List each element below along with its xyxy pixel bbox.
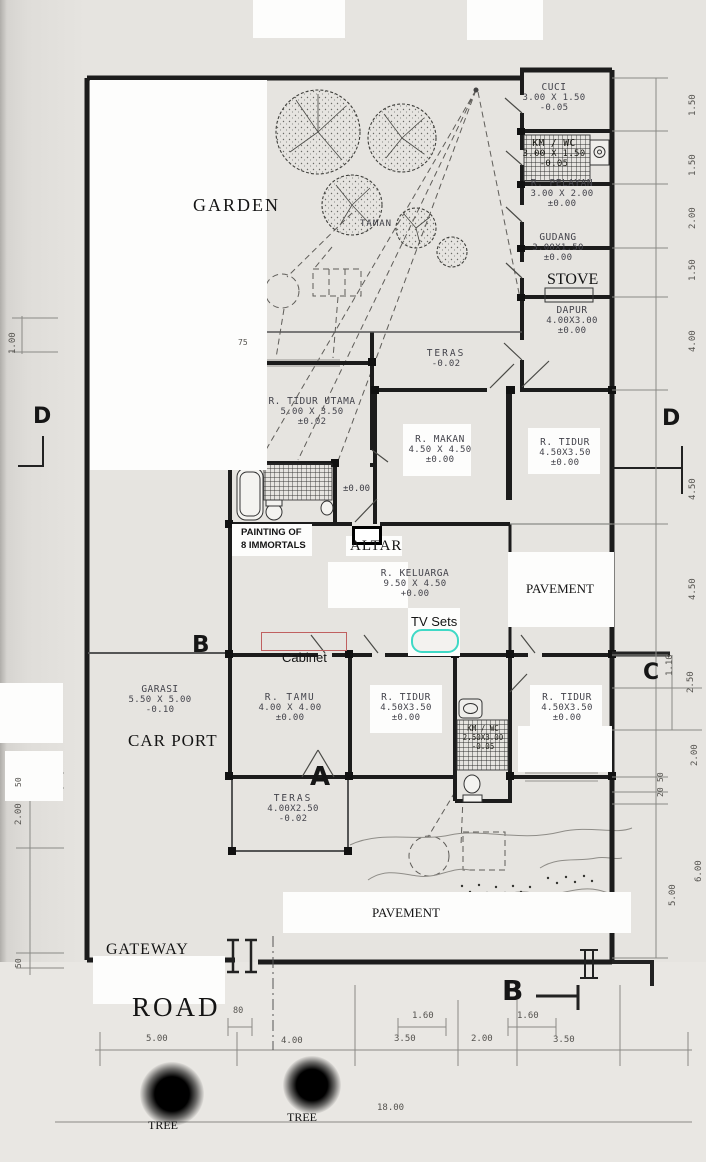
whiteout-patch (518, 726, 612, 772)
room-dapur: DAPUR 4.00X3.00 ±0.00 (546, 305, 597, 336)
floor-plan-scan: CUCI 3.00 X 1.50 -0.05 KM / WC 3.00 X 1.… (0, 0, 706, 1162)
room-level: -0.05 (523, 159, 586, 169)
room-name: R. TIDUR (380, 692, 431, 703)
painting-label-line2: 8 IMMORTALS (241, 540, 306, 551)
room-name: R. KELUARGA (381, 568, 449, 579)
room-size: 5.00 X 3.50 (268, 407, 355, 417)
room-name: R. PELAYAN (531, 178, 594, 189)
room-level: -0.05 (523, 103, 586, 113)
room-kmwc-top: KM / WC 3.00 X 1.50 -0.05 (523, 138, 586, 169)
whiteout-patch (283, 892, 631, 933)
taman-label: TAMAN (360, 219, 392, 229)
room-name: TERAS (427, 348, 466, 359)
garden-trees (276, 90, 467, 267)
dim-label: 1.00 (8, 332, 18, 354)
dim-label: 80 (233, 1006, 243, 1016)
dim-label: 1.60 (517, 1011, 539, 1021)
dim-label: 1.50 (688, 259, 698, 281)
room-name: R. TIDUR UTAMA (268, 396, 355, 407)
dim-label: 2.50 (686, 671, 696, 693)
tree-symbol (140, 1062, 204, 1126)
room-cuci: CUCI 3.00 X 1.50 -0.05 (523, 82, 586, 113)
room-name: R. TAMU (259, 692, 322, 703)
room-level: ±0.00 (259, 713, 322, 723)
room-teras-mid: TERAS -0.02 (427, 348, 466, 369)
room-level: ±0.00 (546, 326, 597, 336)
room-tidur-utama: R. TIDUR UTAMA 5.00 X 3.50 ±0.02 (268, 396, 355, 427)
dim-label: 5.00 (146, 1034, 168, 1044)
room-name: CUCI (523, 82, 586, 93)
room-level: ±0.00 (541, 713, 592, 723)
dim-label: 1.10 (665, 654, 675, 676)
whiteout-patch (0, 683, 63, 743)
room-size: 3.00 X 2.00 (531, 189, 594, 199)
pavement-right-label: PAVEMENT (526, 581, 594, 597)
dim-label: 2.00 (471, 1034, 493, 1044)
room-tidur-bottom-right: R. TIDUR 4.50X3.50 ±0.00 (541, 692, 592, 723)
whiteout-patch (253, 0, 345, 38)
tv-sets-outline (411, 629, 459, 653)
dim-label: 1.60 (412, 1011, 434, 1021)
room-level: ±0.02 (268, 417, 355, 427)
room-level: -0.02 (427, 359, 466, 369)
dim-label: 4.50 (688, 578, 698, 600)
pavement-bottom-label: PAVEMENT (372, 905, 440, 921)
room-keluarga: R. KELUARGA 9.50 X 4.50 +0.00 (381, 568, 449, 599)
room-size: 4.50X3.50 (539, 448, 590, 458)
room-level: ±0.00 (409, 455, 472, 465)
room-size: 2.50X3.00 (463, 733, 504, 742)
room-gudang: GUDANG 3.00X1.50 ±0.00 (532, 232, 583, 263)
garden-label: GARDEN (193, 195, 280, 216)
room-level: -0.05 (463, 742, 504, 751)
room-makan: R. MAKAN 4.50 X 4.50 ±0.00 (409, 434, 472, 465)
section-marker-d-left: D (33, 404, 51, 429)
room-level: -0.02 (267, 814, 318, 824)
room-name: R. TIDUR (539, 437, 590, 448)
room-level: +0.00 (381, 589, 449, 599)
room-teras-bottom: TERAS 4.00X2.50 -0.02 (267, 793, 318, 824)
dim-label: 4.00 (281, 1036, 303, 1046)
room-size: 3.00X1.50 (532, 243, 583, 253)
painting-label-line1: PAINTING OF (241, 527, 302, 538)
dim-label: 50 (656, 772, 665, 782)
tree-label: TREE (148, 1118, 178, 1133)
room-kmwc-bottom: KM / WC 2.50X3.00 -0.05 (463, 724, 504, 751)
tv-sets-label: TV Sets (411, 614, 457, 629)
sight-origin-point (474, 88, 479, 93)
room-size: 3.00 X 1.50 (523, 149, 586, 159)
room-size: 5.50 X 5.00 (129, 695, 192, 705)
room-level: ±0.00 (532, 253, 583, 263)
dim-label: 2.00 (14, 803, 24, 825)
dim-label: 3.50 (394, 1034, 416, 1044)
room-size: 9.50 X 4.50 (381, 579, 449, 589)
dim-label: 6.00 (694, 860, 704, 882)
dim-label: 20 (656, 787, 665, 797)
dim-label: 18.00 (377, 1103, 404, 1113)
dim-label: 50 (14, 777, 23, 787)
section-marker-c-right: C (643, 660, 659, 685)
room-size: 4.50X3.50 (380, 703, 431, 713)
room-pelayan: R. PELAYAN 3.00 X 2.00 ±0.00 (531, 178, 594, 209)
room-size: 4.00X3.00 (546, 316, 597, 326)
room-level: ±0.00 (531, 199, 594, 209)
room-tamu: R. TAMU 4.00 X 4.00 ±0.00 (259, 692, 322, 723)
road-label: ROAD (132, 992, 221, 1023)
dim-label: 4.50 (688, 478, 698, 500)
room-level: -0.10 (129, 705, 192, 715)
gateway-label: GATEWAY (106, 941, 189, 959)
room-garasi: GARASI 5.50 X 5.00 -0.10 (129, 684, 192, 715)
room-name: R. MAKAN (409, 434, 472, 445)
dim-label: 1.50 (688, 94, 698, 116)
dim-label: 1.50 (688, 154, 698, 176)
whiteout-patch (467, 0, 543, 40)
room-level: ±0.00 (539, 458, 590, 468)
dim-label: 2.00 (690, 744, 700, 766)
spot-level-label: ±0.00 (343, 484, 370, 494)
section-marker-a: A (310, 762, 330, 792)
room-tidur-mid: R. TIDUR 4.50X3.50 ±0.00 (380, 692, 431, 723)
whiteout-patch (90, 80, 267, 470)
dim-label: 50 (14, 958, 23, 968)
dim-label: 2.00 (688, 207, 698, 229)
room-name: GARASI (129, 684, 192, 695)
tree-symbol (283, 1056, 341, 1114)
dim-label: 3.50 (553, 1035, 575, 1045)
dim-label: 4.00 (688, 330, 698, 352)
room-size: 4.00 X 4.00 (259, 703, 322, 713)
cabinet-label: Cabinet (282, 650, 327, 665)
room-level: ±0.00 (380, 713, 431, 723)
room-size: 3.00 X 1.50 (523, 93, 586, 103)
room-size: 4.50X3.50 (541, 703, 592, 713)
room-size: 4.50 X 4.50 (409, 445, 472, 455)
room-tidur-right: R. TIDUR 4.50X3.50 ±0.00 (539, 437, 590, 468)
stove-label: STOVE (547, 271, 598, 289)
cabinet-outline (261, 632, 347, 651)
section-marker-b-left: B (192, 632, 210, 658)
room-name: GUDANG (532, 232, 583, 243)
room-size: 4.00X2.50 (267, 804, 318, 814)
room-name: R. TIDUR (541, 692, 592, 703)
dim-label: 5.00 (668, 884, 678, 906)
planter-dim-label: 75 (238, 338, 248, 347)
room-name: DAPUR (546, 305, 597, 316)
whiteout-patch (5, 751, 63, 801)
tree-label: TREE (287, 1110, 317, 1125)
altar-label: ALTAR (350, 538, 402, 555)
section-marker-b-bottom: B (502, 974, 523, 1007)
car-port-label: CAR PORT (128, 731, 218, 751)
room-name: TERAS (267, 793, 318, 804)
section-marker-d-right: D (662, 406, 680, 431)
room-name: KM / WC (463, 724, 504, 733)
room-name: KM / WC (523, 138, 586, 149)
